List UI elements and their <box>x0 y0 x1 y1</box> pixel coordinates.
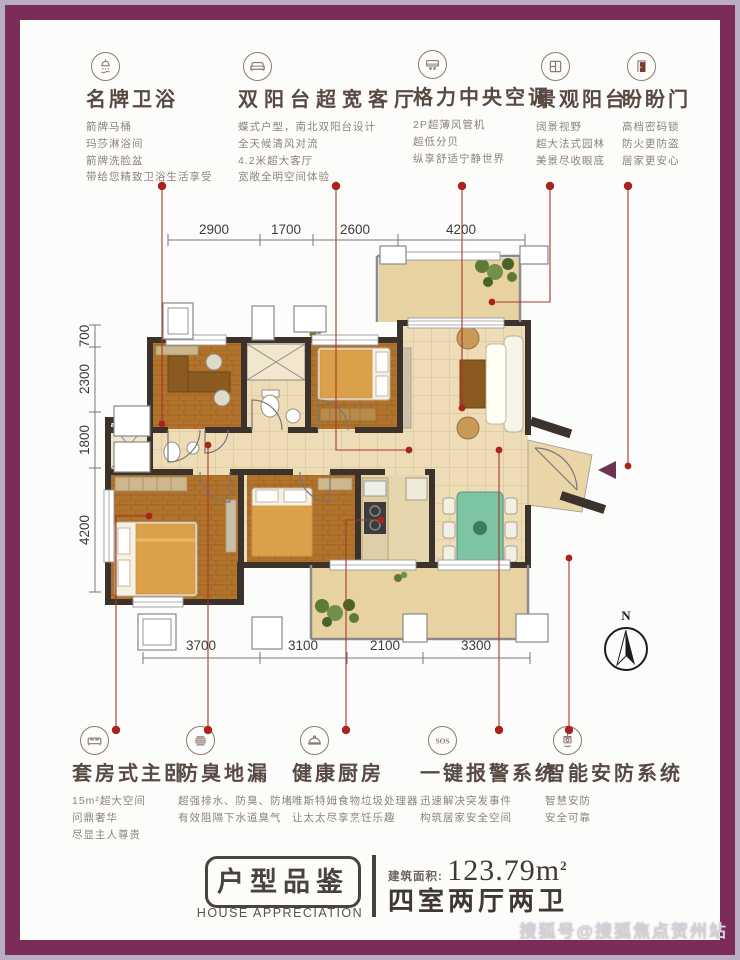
dim-label: 3300 <box>461 638 491 653</box>
dim-label: 4200 <box>446 222 476 237</box>
dim-label: 3700 <box>186 638 216 653</box>
dim-label: 1700 <box>271 222 301 237</box>
dim-label: 2100 <box>370 638 400 653</box>
floor-plan: 2900 1700 2600 4200 700 2300 1800 4200 3… <box>0 0 740 960</box>
dim-label: 2300 <box>77 364 92 394</box>
compass: N <box>605 608 647 670</box>
dim-label: 700 <box>77 325 92 348</box>
compass-north-label: N <box>621 608 631 623</box>
dim-label: 1800 <box>77 425 92 455</box>
dim-label: 3100 <box>288 638 318 653</box>
dim-label: 2900 <box>199 222 229 237</box>
dim-label: 2600 <box>340 222 370 237</box>
entry-arrow <box>598 461 616 479</box>
watermark: 搜狐号@搜狐焦点贺州站 <box>519 921 728 943</box>
poster-page: 名牌卫浴 箭牌马桶 玛莎淋浴间 箭牌洗脸盆 带给您精致卫浴生活享受 双阳台超宽客… <box>0 0 740 960</box>
dim-label: 4200 <box>77 515 92 545</box>
